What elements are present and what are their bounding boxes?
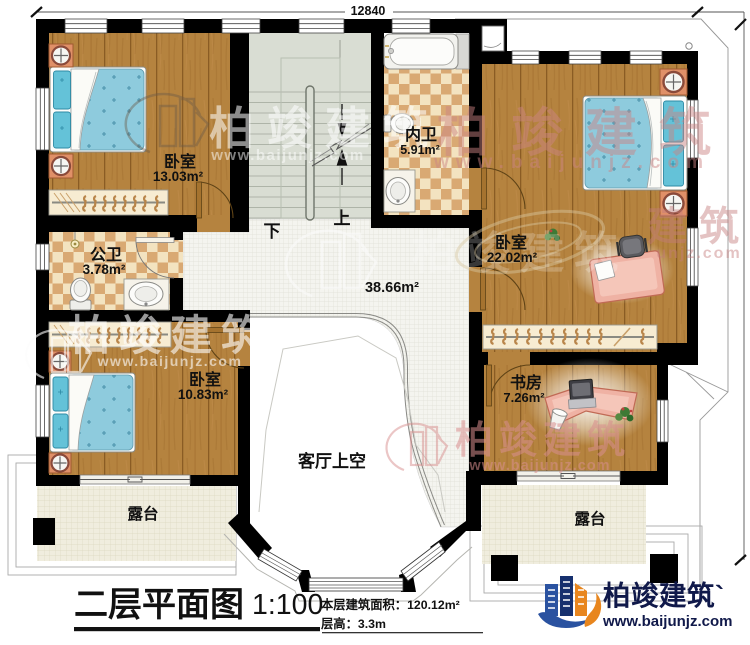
svg-text:柏竣建筑: 柏竣建筑 — [68, 312, 272, 359]
svg-text:5.91m²: 5.91m² — [400, 143, 440, 157]
svg-text:露台: 露台 — [574, 509, 605, 528]
svg-text:10.83m²: 10.83m² — [178, 387, 229, 402]
svg-text:内卫: 内卫 — [405, 125, 437, 144]
svg-text:下: 下 — [264, 222, 281, 241]
svg-text:柏竣建筑: 柏竣建筑 — [455, 420, 631, 462]
svg-text:上: 上 — [334, 209, 351, 228]
svg-text:1:100: 1:100 — [252, 589, 323, 621]
svg-text:层高：3.3m: 层高：3.3m — [321, 616, 386, 631]
svg-text:二层平面图: 二层平面图 — [74, 586, 244, 624]
svg-text:www.baijunjz.com: www.baijunjz.com — [97, 353, 243, 369]
svg-text:www.baijunjz.com: www.baijunjz.com — [433, 152, 710, 173]
svg-text:露台: 露台 — [127, 504, 158, 523]
svg-text:本层建筑面积：120.12m²: 本层建筑面积：120.12m² — [321, 597, 460, 612]
svg-text:7.26m²: 7.26m² — [503, 390, 545, 405]
svg-text:12840: 12840 — [351, 4, 386, 18]
svg-text:unjz.com: unjz.com — [656, 245, 741, 262]
svg-text:www.baijunjz.com: www.baijunjz.com — [210, 147, 364, 164]
svg-text:www.baijunjz.com: www.baijunjz.com — [468, 458, 610, 474]
svg-text:建筑: 建筑 — [647, 205, 750, 249]
svg-text:38.66m²: 38.66m² — [365, 280, 419, 296]
svg-text:www.baijunjz.com: www.baijunjz.com — [602, 613, 732, 630]
svg-text:客厅上空: 客厅上空 — [297, 451, 366, 471]
svg-text:柏竣建筑`: 柏竣建筑` — [603, 580, 725, 611]
svg-text:3.78m²: 3.78m² — [83, 262, 126, 277]
svg-text:22.02m²: 22.02m² — [487, 250, 538, 265]
svg-text:13.03m²: 13.03m² — [153, 169, 204, 184]
